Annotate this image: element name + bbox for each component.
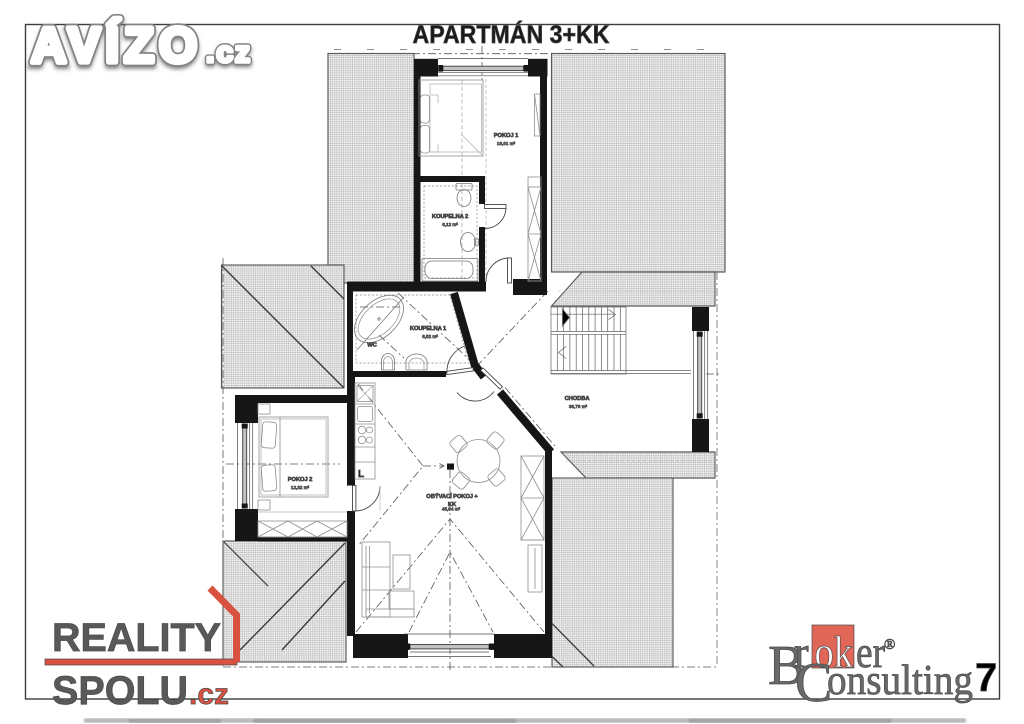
svg-text:®: ®: [884, 637, 895, 653]
svg-text:SPOLU: SPOLU: [52, 669, 188, 713]
svg-text:6,12 m²: 6,12 m²: [442, 222, 458, 227]
svg-text:45,84 m²: 45,84 m²: [442, 507, 461, 512]
svg-text:12,32 m²: 12,32 m²: [291, 485, 310, 490]
svg-text:REALITY: REALITY: [52, 616, 221, 660]
svg-text:AVÍZO: AVÍZO: [31, 19, 202, 73]
svg-text:CHODBA: CHODBA: [565, 396, 591, 402]
svg-text:.cz: .cz: [206, 36, 252, 69]
svg-text:POKOJ 2: POKOJ 2: [288, 477, 312, 483]
svg-text:L: L: [358, 469, 364, 480]
svg-text:WC: WC: [367, 343, 377, 349]
svg-text:onsulting: onsulting: [827, 658, 973, 704]
svg-text:OBÝVACÍ POKOJ +: OBÝVACÍ POKOJ +: [426, 492, 478, 500]
svg-text:APARTMÁN 3+KK: APARTMÁN 3+KK: [413, 20, 610, 49]
svg-text:KOUPELNA 2: KOUPELNA 2: [432, 214, 468, 220]
svg-text:8,52 m²: 8,52 m²: [422, 334, 438, 339]
svg-text:7: 7: [975, 656, 997, 700]
svg-text:.cz: .cz: [189, 678, 229, 711]
svg-text:36,76 m²: 36,76 m²: [569, 404, 588, 409]
svg-text:POKOJ 1: POKOJ 1: [494, 133, 519, 139]
svg-text:18,61 m²: 18,61 m²: [497, 141, 516, 146]
svg-text:KOUPELNA 1: KOUPELNA 1: [410, 326, 447, 332]
